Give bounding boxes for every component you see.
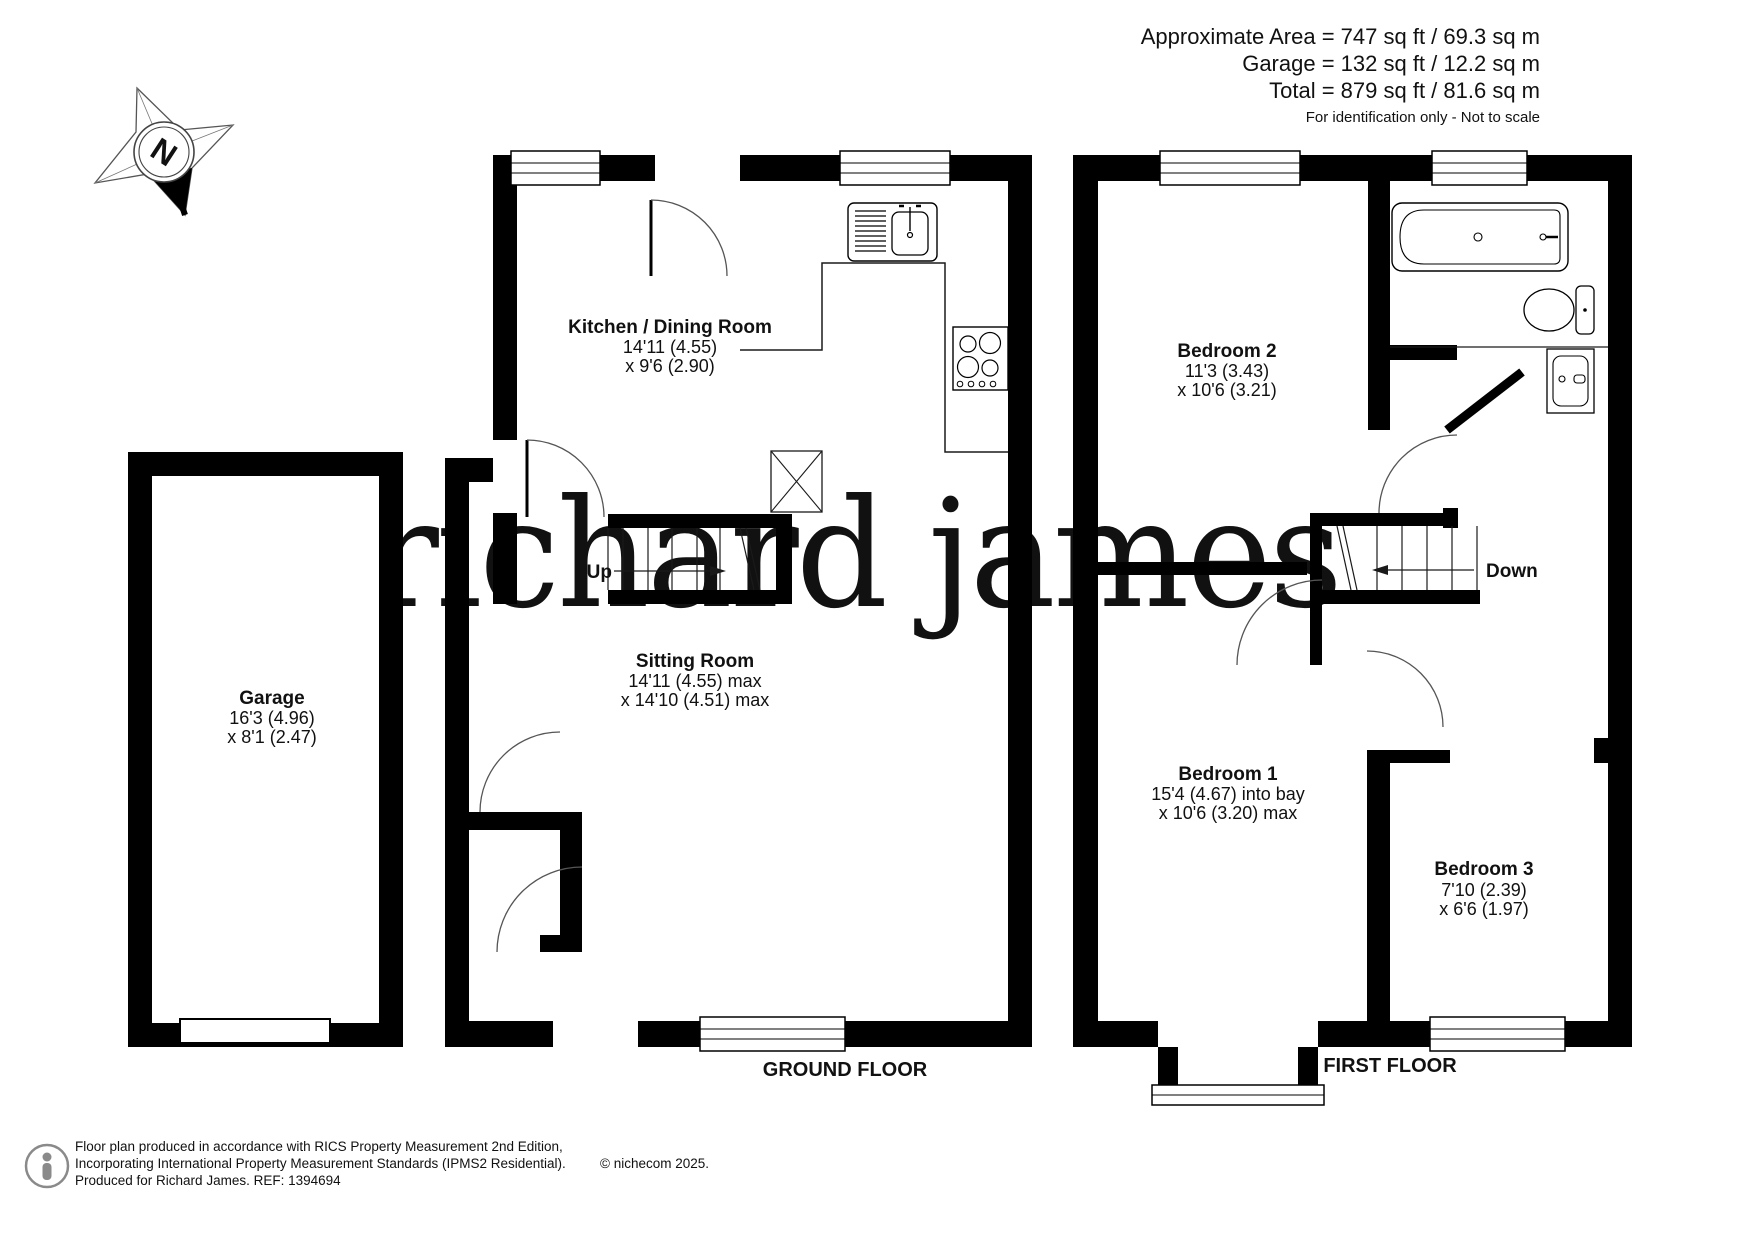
room-dim: x 10'6 (3.20) max — [1159, 803, 1298, 823]
floor-caption-ground: GROUND FLOOR — [763, 1059, 928, 1081]
kitchen-sink-unit — [848, 203, 937, 261]
window — [700, 1017, 845, 1051]
room-name: Sitting Room — [636, 651, 754, 672]
footer-disclaimer: Floor plan produced in accordance with R… — [75, 1139, 709, 1188]
garage-structure — [128, 452, 403, 1047]
room-dim: 11'3 (3.43) — [1185, 361, 1269, 381]
footer-line-2: Incorporating International Property Mea… — [75, 1156, 566, 1171]
room-dim: 14'11 (4.55) — [623, 337, 717, 357]
bathtub-fixture — [1392, 203, 1568, 271]
garage-area-line: Garage = 132 sq ft / 12.2 sq m — [1242, 51, 1540, 76]
room-label-sitting: Sitting Room 14'11 (4.55) max x 14'10 (4… — [621, 651, 770, 710]
kitchen-hob — [953, 327, 1008, 390]
room-label-kitchen: Kitchen / Dining Room 14'11 (4.55) x 9'6… — [568, 317, 772, 376]
stairs-up-label: Up — [587, 562, 612, 583]
window — [1432, 151, 1527, 185]
room-name: Bedroom 2 — [1177, 341, 1276, 362]
bay-window — [1152, 1021, 1324, 1105]
room-label-garage: Garage 16'3 (4.96) x 8'1 (2.47) — [227, 688, 316, 747]
room-dim: 14'11 (4.55) max — [628, 671, 761, 691]
window — [1430, 1017, 1565, 1051]
room-dim: x 10'6 (3.21) — [1177, 380, 1277, 400]
window — [840, 151, 950, 185]
footer-copyright: © nichecom 2025. — [600, 1156, 709, 1171]
room-label-bedroom1: Bedroom 1 15'4 (4.67) into bay x 10'6 (3… — [1151, 764, 1305, 823]
header-area-summary: Approximate Area = 747 sq ft / 69.3 sq m… — [1141, 24, 1540, 126]
identification-note: For identification only - Not to scale — [1306, 109, 1540, 126]
room-dim: x 9'6 (2.90) — [625, 356, 714, 376]
room-label-bedroom3: Bedroom 3 7'10 (2.39) x 6'6 (1.97) — [1434, 859, 1533, 919]
room-name: Kitchen / Dining Room — [568, 317, 772, 338]
room-dim: 7'10 (2.39) — [1441, 880, 1527, 900]
window — [511, 151, 600, 185]
room-dim: 16'3 (4.96) — [229, 708, 315, 728]
airing-cupboard-door — [1447, 372, 1522, 430]
total-area-line: Total = 879 sq ft / 81.6 sq m — [1269, 78, 1540, 103]
floorplan-svg: richard james Approximate Area = 747 sq … — [0, 0, 1755, 1241]
floorplan-page: richard james Approximate Area = 747 sq … — [0, 0, 1755, 1241]
footer-line-3: Produced for Richard James. REF: 1394694 — [75, 1173, 341, 1188]
wash-basin-fixture — [1547, 349, 1594, 413]
approximate-area-line: Approximate Area = 747 sq ft / 69.3 sq m — [1141, 24, 1540, 49]
room-dim: x 14'10 (4.51) max — [621, 690, 770, 710]
north-compass-icon: N — [95, 88, 233, 215]
room-dim: 15'4 (4.67) into bay — [1151, 784, 1305, 804]
footer-line-1: Floor plan produced in accordance with R… — [75, 1139, 563, 1154]
nichecom-logo-icon — [26, 1145, 68, 1187]
stairs-down-label: Down — [1486, 561, 1538, 582]
window — [1160, 151, 1300, 185]
room-dim: x 6'6 (1.97) — [1439, 899, 1528, 919]
room-name: Garage — [239, 688, 304, 709]
toilet-fixture — [1524, 286, 1594, 334]
room-dim: x 8'1 (2.47) — [227, 727, 316, 747]
cupboard-x-box — [771, 451, 822, 512]
stairs-down — [1337, 526, 1477, 590]
room-name: Bedroom 1 — [1178, 764, 1278, 785]
room-name: Bedroom 3 — [1434, 859, 1533, 880]
floor-caption-first: FIRST FLOOR — [1323, 1055, 1457, 1077]
room-label-bedroom2: Bedroom 2 11'3 (3.43) x 10'6 (3.21) — [1177, 341, 1277, 400]
